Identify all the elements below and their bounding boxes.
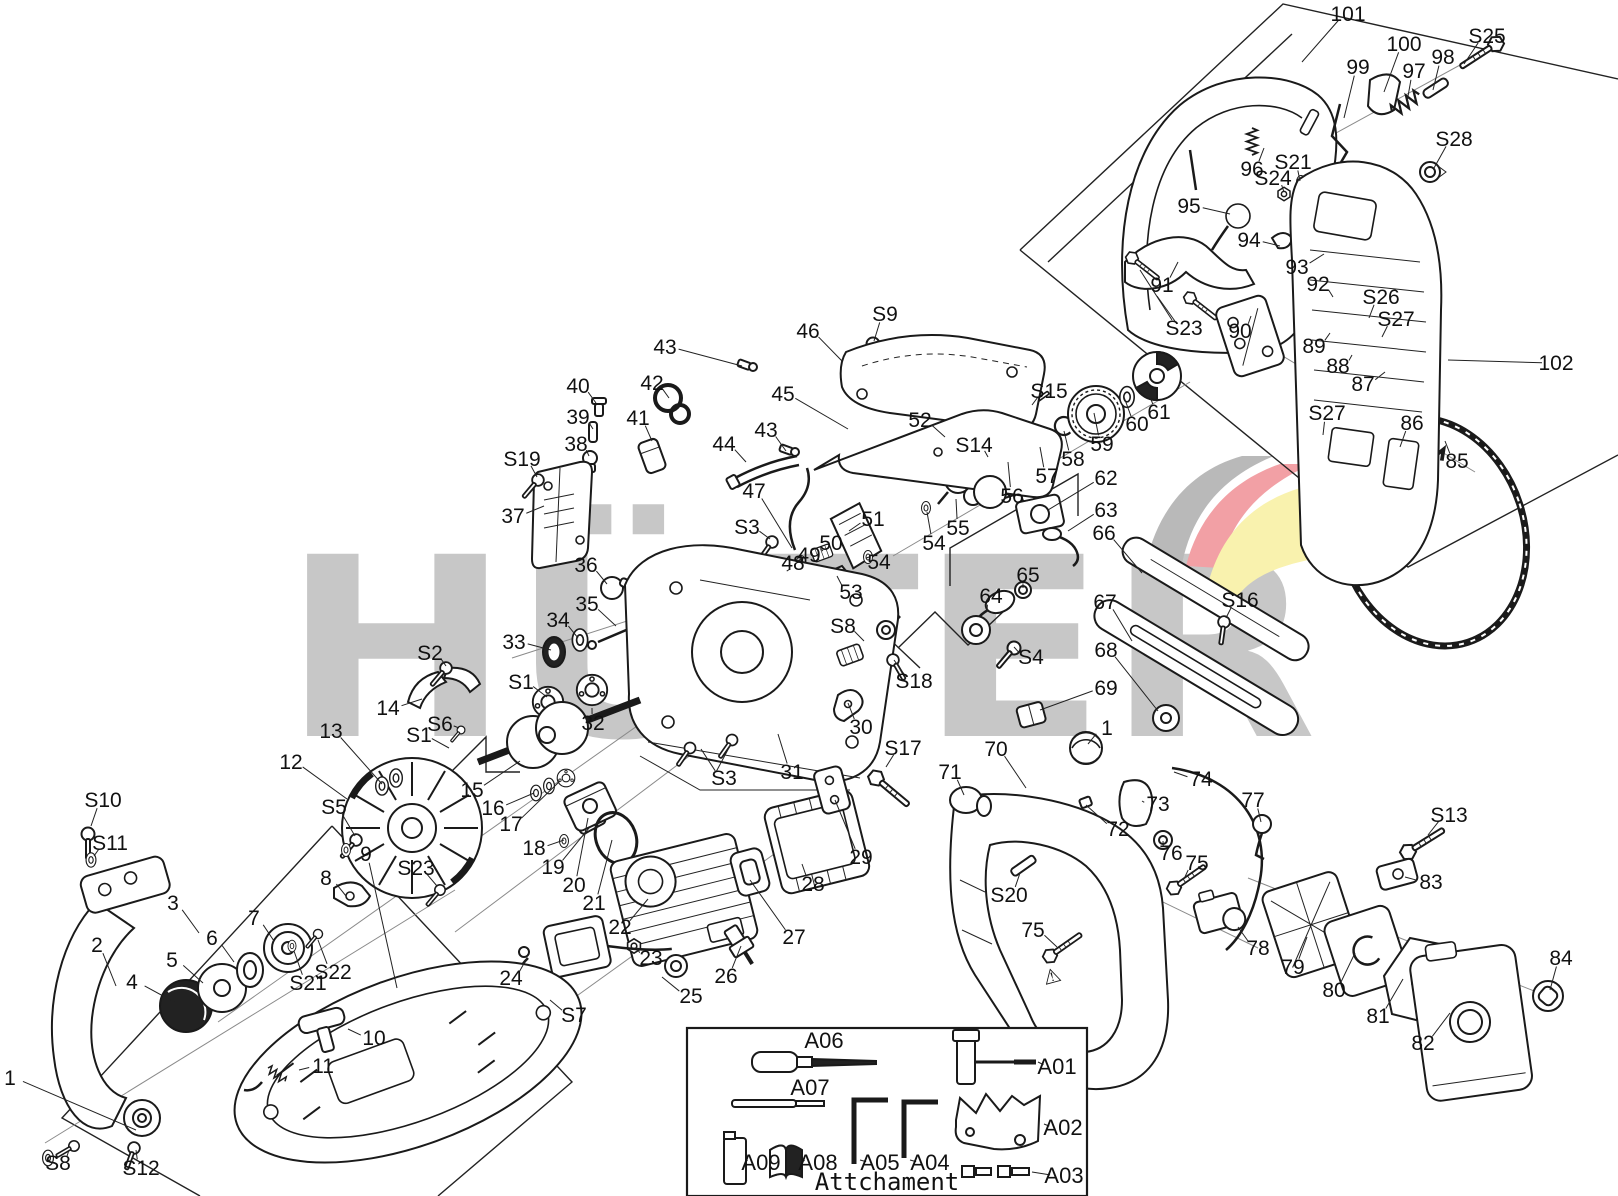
leader-101 bbox=[1302, 20, 1338, 62]
part-label-10: 10 bbox=[362, 1027, 385, 1050]
part-label-38: 38 bbox=[564, 433, 587, 456]
part-label-56: 56 bbox=[1000, 485, 1023, 508]
part-label-81: 81 bbox=[1366, 1005, 1389, 1028]
part-label-89: 89 bbox=[1302, 335, 1325, 358]
washer-54 bbox=[922, 502, 931, 515]
part-label-24: 24 bbox=[499, 967, 523, 990]
part-label-51: 51 bbox=[861, 508, 884, 531]
part-label-S1: S1 bbox=[406, 724, 432, 747]
part-label-80: 80 bbox=[1322, 979, 1345, 1002]
part-label-83: 83 bbox=[1419, 871, 1442, 894]
washer-s8 bbox=[877, 621, 895, 639]
part-label-17: 17 bbox=[499, 813, 522, 836]
part-label-29: 29 bbox=[849, 846, 872, 869]
part-label-91: 91 bbox=[1150, 274, 1173, 297]
part-label-42: 42 bbox=[640, 372, 663, 395]
part-label-A02: A02 bbox=[1043, 1115, 1082, 1140]
part-label-S3: S3 bbox=[734, 516, 760, 539]
part-label-41: 41 bbox=[626, 407, 649, 430]
part-label-S16: S16 bbox=[1221, 589, 1258, 612]
part-label-75: 75 bbox=[1185, 852, 1208, 875]
part-label-S23: S23 bbox=[397, 857, 434, 880]
part-label-A06: A06 bbox=[804, 1028, 843, 1053]
part-label-11: 11 bbox=[312, 1055, 334, 1078]
washer-6 bbox=[237, 953, 263, 987]
part-label-37: 37 bbox=[501, 505, 524, 528]
part-label-32: 32 bbox=[581, 712, 604, 735]
part-label-79: 79 bbox=[1281, 956, 1304, 979]
part-label-28: 28 bbox=[801, 873, 824, 896]
part-label-1: 1 bbox=[1101, 717, 1113, 740]
part-label-S19: S19 bbox=[503, 448, 540, 471]
part-label-50: 50 bbox=[819, 532, 842, 555]
fuel-tank-82 bbox=[1407, 933, 1534, 1102]
leader-3 bbox=[182, 910, 199, 933]
part-label-65: 65 bbox=[1016, 564, 1039, 587]
part-label-70: 70 bbox=[984, 738, 1007, 761]
leader-25 bbox=[662, 977, 679, 991]
pawl-8 bbox=[334, 882, 370, 906]
part-label-S1: S1 bbox=[508, 671, 534, 694]
nut-s28 bbox=[1420, 162, 1446, 182]
part-label-69: 69 bbox=[1094, 677, 1117, 700]
washer-s21l bbox=[288, 940, 296, 952]
part-label-21: 21 bbox=[582, 892, 605, 915]
exploded-parts-diagram: HÜTER bbox=[0, 0, 1618, 1196]
part-label-55: 55 bbox=[946, 517, 969, 540]
part-label-58: 58 bbox=[1061, 448, 1084, 471]
part-label-13: 13 bbox=[319, 720, 342, 743]
washer-13b bbox=[390, 769, 403, 787]
diagram-canvas: HÜTER bbox=[0, 0, 1618, 1196]
bearing-32 bbox=[577, 675, 607, 705]
part-label-S13: S13 bbox=[1430, 804, 1467, 827]
part-label-84: 84 bbox=[1549, 947, 1573, 970]
part-label-S25: S25 bbox=[1468, 25, 1505, 48]
air-filter-group bbox=[1260, 823, 1563, 1103]
part-label-S27: S27 bbox=[1308, 402, 1345, 425]
part-label-S14: S14 bbox=[955, 434, 993, 457]
seal-33 bbox=[543, 637, 565, 667]
part-label-A09: A09 bbox=[741, 1150, 780, 1175]
part-label-63: 63 bbox=[1094, 499, 1117, 522]
part-label-90: 90 bbox=[1228, 320, 1251, 343]
part-label-45: 45 bbox=[771, 383, 794, 406]
washer-16a bbox=[531, 785, 542, 801]
part-label-S2: S2 bbox=[417, 642, 443, 665]
part-label-A07: A07 bbox=[790, 1075, 829, 1100]
bumper-cap-1 bbox=[1070, 732, 1102, 764]
bracket-83 bbox=[1376, 858, 1419, 891]
part-label-22: 22 bbox=[608, 916, 631, 939]
part-label-101: 101 bbox=[1330, 3, 1365, 26]
part-label-6: 6 bbox=[206, 927, 218, 950]
part-label-A04: A04 bbox=[910, 1150, 949, 1175]
part-label-36: 36 bbox=[574, 554, 597, 577]
leader-99 bbox=[1344, 76, 1354, 118]
part-label-66: 66 bbox=[1092, 522, 1115, 545]
part-label-40: 40 bbox=[566, 375, 589, 398]
part-label-A05: A05 bbox=[860, 1150, 899, 1175]
part-label-39: 39 bbox=[566, 406, 589, 429]
part-label-88: 88 bbox=[1326, 355, 1349, 378]
leader-46 bbox=[818, 337, 842, 361]
part-label-93: 93 bbox=[1285, 256, 1308, 279]
part-label-S8: S8 bbox=[45, 1152, 71, 1175]
bearing-17 bbox=[557, 769, 575, 787]
part-label-S8: S8 bbox=[830, 615, 856, 638]
part-label-35: 35 bbox=[575, 593, 598, 616]
part-label-71: 71 bbox=[938, 761, 961, 784]
part-label-14: 14 bbox=[376, 697, 400, 720]
part-label-54: 54 bbox=[922, 532, 946, 555]
part-label-2: 2 bbox=[91, 934, 103, 957]
part-label-68: 68 bbox=[1094, 639, 1117, 662]
part-label-46: 46 bbox=[796, 320, 819, 343]
part-label-30: 30 bbox=[849, 716, 872, 739]
part-label-S15: S15 bbox=[1030, 380, 1067, 403]
part-label-47: 47 bbox=[742, 480, 765, 503]
cap-84 bbox=[1533, 981, 1563, 1011]
leader-44 bbox=[735, 450, 746, 462]
part-label-78: 78 bbox=[1246, 937, 1269, 960]
part-label-87: 87 bbox=[1351, 373, 1374, 396]
part-label-57: 57 bbox=[1035, 465, 1058, 488]
part-label-60: 60 bbox=[1125, 413, 1148, 436]
part-label-53: 53 bbox=[839, 581, 862, 604]
part-label-85: 85 bbox=[1445, 450, 1468, 473]
wire-loop-95 bbox=[1226, 204, 1250, 228]
part-label-99: 99 bbox=[1346, 56, 1369, 79]
flange-1 bbox=[124, 1100, 160, 1136]
part-label-94: 94 bbox=[1237, 229, 1261, 252]
clutch-61 bbox=[1133, 352, 1181, 400]
part-label-5: 5 bbox=[166, 949, 178, 972]
carb-assy-78 bbox=[1191, 883, 1248, 939]
part-label-19: 19 bbox=[541, 856, 564, 879]
part-label-15: 15 bbox=[460, 779, 483, 802]
part-label-A03: A03 bbox=[1044, 1163, 1083, 1188]
part-label-9: 9 bbox=[360, 843, 372, 866]
part-label-64: 64 bbox=[979, 585, 1003, 608]
bolt-s13 bbox=[1398, 823, 1448, 863]
part-label-27: 27 bbox=[782, 926, 805, 949]
part-label-4: 4 bbox=[126, 971, 138, 994]
part-label-31: 31 bbox=[780, 761, 803, 784]
part-label-67: 67 bbox=[1093, 591, 1116, 614]
part-label-S4: S4 bbox=[1018, 646, 1044, 669]
plug-boot bbox=[665, 955, 687, 977]
part-label-44: 44 bbox=[712, 433, 736, 456]
part-label-92: 92 bbox=[1306, 273, 1329, 296]
part-label-A08: A08 bbox=[798, 1150, 837, 1175]
part-label-62: 62 bbox=[1094, 467, 1117, 490]
part-label-98: 98 bbox=[1431, 46, 1454, 69]
part-label-72: 72 bbox=[1106, 818, 1129, 841]
file-a07 bbox=[732, 1100, 824, 1107]
washer-34 bbox=[572, 629, 587, 651]
part-label-54: 54 bbox=[867, 551, 891, 574]
part-label-S26: S26 bbox=[1362, 286, 1399, 309]
part-label-77: 77 bbox=[1241, 789, 1264, 812]
filter-41 bbox=[637, 438, 667, 475]
part-label-48: 48 bbox=[781, 552, 804, 575]
front-handle-2 bbox=[52, 855, 172, 1129]
clip-72 bbox=[1079, 796, 1092, 808]
part-label-S22: S22 bbox=[314, 961, 351, 984]
part-label-61: 61 bbox=[1147, 401, 1170, 424]
part-label-26: 26 bbox=[714, 965, 737, 988]
part-label-74: 74 bbox=[1189, 768, 1213, 791]
part-label-S23: S23 bbox=[1165, 317, 1202, 340]
part-label-S5: S5 bbox=[321, 796, 347, 819]
leader-6 bbox=[221, 945, 234, 962]
part-label-95: 95 bbox=[1177, 195, 1200, 218]
part-label-S21: S21 bbox=[1274, 151, 1311, 174]
part-label-82: 82 bbox=[1411, 1032, 1434, 1055]
part-label-59: 59 bbox=[1090, 433, 1113, 456]
part-label-S3: S3 bbox=[711, 767, 737, 790]
part-label-S17: S17 bbox=[884, 737, 921, 760]
part-label-75: 75 bbox=[1021, 919, 1044, 942]
part-label-S7: S7 bbox=[561, 1004, 587, 1027]
part-label-34: 34 bbox=[546, 609, 570, 632]
leader-45 bbox=[795, 398, 848, 429]
part-label-97: 97 bbox=[1402, 60, 1425, 83]
part-label-S10: S10 bbox=[84, 789, 121, 812]
part-label-33: 33 bbox=[502, 631, 525, 654]
part-label-S18: S18 bbox=[895, 670, 932, 693]
part-label-73: 73 bbox=[1146, 793, 1169, 816]
part-label-25: 25 bbox=[679, 985, 702, 1008]
part-label-3: 3 bbox=[167, 892, 179, 915]
part-label-100: 100 bbox=[1386, 33, 1421, 56]
part-label-52: 52 bbox=[908, 409, 931, 432]
part-label-76: 76 bbox=[1159, 842, 1182, 865]
part-label-S11: S11 bbox=[92, 832, 128, 855]
part-label-43: 43 bbox=[653, 336, 676, 359]
part-label-43: 43 bbox=[754, 419, 777, 442]
part-label-1: 1 bbox=[4, 1067, 16, 1090]
part-label-A01: A01 bbox=[1037, 1054, 1076, 1079]
gasket-45 bbox=[814, 410, 1062, 508]
part-label-23: 23 bbox=[639, 947, 662, 970]
part-label-7: 7 bbox=[248, 907, 260, 930]
part-label-8: 8 bbox=[320, 867, 332, 890]
part-label-S12: S12 bbox=[122, 1157, 159, 1180]
part-label-S20: S20 bbox=[990, 884, 1027, 907]
leader-102 bbox=[1448, 360, 1542, 363]
part-label-86: 86 bbox=[1400, 412, 1423, 435]
part-label-S9: S9 bbox=[872, 303, 898, 326]
part-label-S28: S28 bbox=[1435, 128, 1472, 151]
part-label-S27: S27 bbox=[1377, 308, 1414, 331]
part-label-102: 102 bbox=[1538, 352, 1573, 375]
leader-43 bbox=[679, 349, 742, 366]
part-label-12: 12 bbox=[279, 751, 302, 774]
